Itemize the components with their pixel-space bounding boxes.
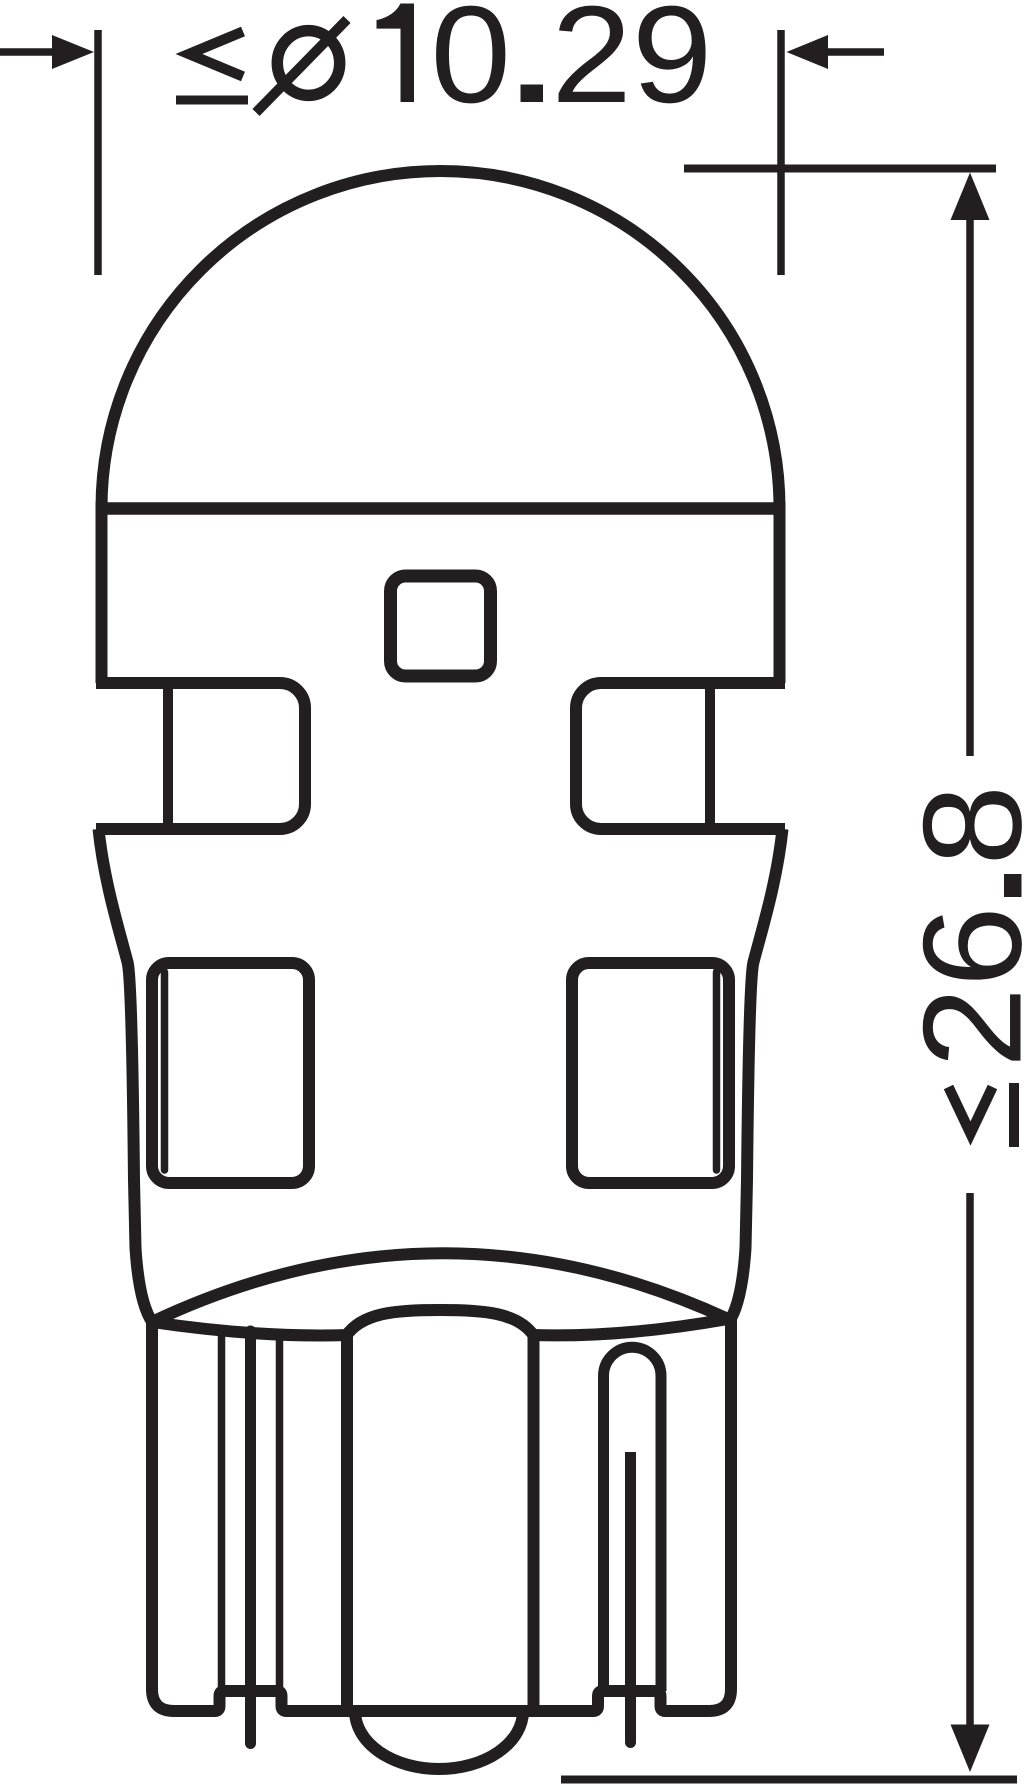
svg-text:0.29: 0.29 xyxy=(430,0,712,131)
svg-text:26.8: 26.8 xyxy=(895,785,1024,1068)
